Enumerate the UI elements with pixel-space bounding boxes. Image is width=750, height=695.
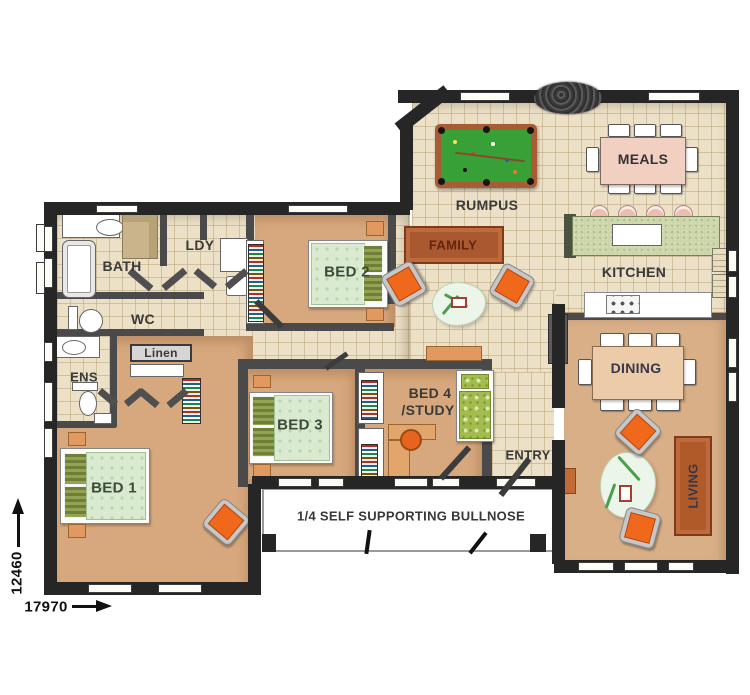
room-label-rumpus: RUMPUS (456, 197, 518, 213)
window (728, 276, 737, 298)
meter-box (36, 262, 45, 294)
island-sink (612, 224, 662, 246)
floor-plan: BATH LDY WC ENS Linen BED 2 BED 1 BED 3 … (0, 0, 750, 695)
rug-decor (617, 456, 641, 482)
meals-chair (685, 147, 698, 172)
wall-segment (200, 212, 207, 240)
room-label-bed4-line1: BED 4 (409, 385, 452, 401)
pool-ball (453, 140, 457, 144)
pool-ball (491, 142, 495, 146)
pool-pocket (483, 179, 490, 186)
dimension-vertical: 12460 (9, 551, 26, 594)
meals-chair (608, 124, 630, 137)
bed4-pillow (461, 374, 489, 389)
bath-sink (96, 219, 124, 236)
robe-shelves (361, 444, 378, 478)
bath-cabinet (122, 213, 158, 259)
window (96, 205, 138, 213)
linen-shelf (130, 364, 184, 377)
robe-shelves (361, 380, 378, 420)
pool-pocket (438, 178, 445, 185)
furniture-label-living: LIVING (686, 463, 701, 508)
bed2-side-table (366, 221, 384, 236)
window (44, 342, 53, 362)
dining-chair (656, 333, 680, 347)
bathtub (62, 240, 96, 298)
porch-post (530, 534, 546, 552)
meter-box (36, 224, 45, 252)
dimension-arrow-up-icon (12, 498, 24, 514)
window (432, 478, 460, 487)
pool-pocket (527, 127, 534, 134)
window (648, 92, 700, 101)
dimension-arrow-right-icon (96, 600, 112, 612)
window (318, 478, 344, 487)
room-label-bath: BATH (102, 258, 141, 274)
dining-chair (578, 359, 592, 385)
window (44, 382, 53, 422)
window (394, 478, 428, 487)
bed4-duvet (459, 391, 491, 439)
wall-segment (552, 440, 565, 564)
wc-toilet (79, 309, 103, 333)
wall-segment (246, 323, 394, 331)
room-label-bed1: BED 1 (91, 480, 137, 497)
cooktop (606, 295, 640, 314)
dining-chair (600, 333, 624, 347)
wall-segment (56, 329, 204, 336)
dining-chair (628, 333, 652, 347)
bed4-sideboard (426, 346, 482, 361)
window (728, 338, 737, 368)
pool-pocket (438, 127, 445, 134)
porch-post (262, 534, 276, 552)
window (88, 584, 132, 593)
pool-pocket (483, 126, 490, 133)
bed2-side-table (366, 308, 384, 321)
wall-segment (552, 304, 565, 408)
note-bullnose: 1/4 SELF SUPPORTING BULLNOSE (297, 509, 525, 524)
pool-ball (513, 170, 517, 174)
window (460, 92, 510, 101)
room-label-bed2: BED 2 (324, 264, 370, 281)
double-door-bed1 (142, 388, 184, 416)
furniture-label-dining: DINING (611, 360, 662, 376)
furniture-label-family: FAMILY (429, 238, 477, 253)
wall-segment (726, 90, 739, 574)
dimension-line (72, 605, 96, 608)
wall-segment (44, 582, 260, 595)
window (278, 478, 312, 487)
room-label-bed3: BED 3 (277, 417, 323, 434)
double-door-ensuite (102, 388, 140, 416)
pool-table (435, 124, 537, 188)
window (288, 205, 348, 213)
window (728, 372, 737, 402)
wall-segment (238, 359, 248, 487)
window (44, 226, 53, 252)
window (578, 562, 614, 571)
coffee-table (451, 297, 467, 308)
floor-entry (492, 372, 554, 490)
window (624, 562, 658, 571)
meals-chair (634, 124, 656, 137)
bed4-desk-chair (400, 429, 422, 451)
bed3-pillow (252, 427, 276, 457)
room-label-ensuite: ENS (70, 370, 98, 385)
window (44, 258, 53, 288)
kitchen-bench (584, 292, 712, 318)
bed3-pillow (252, 396, 276, 426)
wall-segment (160, 212, 167, 266)
dimension-horizontal: 17970 (24, 599, 67, 616)
room-label-laundry: LDY (186, 237, 215, 253)
dining-chair (682, 359, 696, 385)
shrub-plant (534, 82, 602, 114)
entry-console (564, 468, 576, 494)
wall-segment (248, 484, 261, 595)
room-label-entry: ENTRY (505, 448, 550, 463)
pool-ball (463, 168, 467, 172)
room-label-linen: Linen (144, 346, 178, 360)
bed1-pillow (64, 453, 88, 485)
room-label-wc: WC (131, 311, 155, 327)
bed3-side-table (253, 375, 271, 388)
wc-cistern (68, 306, 78, 330)
ensuite-sink (62, 340, 86, 355)
rug-decor (605, 483, 617, 508)
room-label-kitchen: KITCHEN (602, 264, 666, 280)
bed1-side-table (68, 524, 86, 538)
bed1-pillow (64, 486, 88, 518)
meals-chair (586, 147, 599, 172)
coffee-table (619, 485, 632, 502)
double-door-hall (198, 268, 244, 298)
window (668, 562, 694, 571)
robe-shelves (182, 378, 201, 424)
meals-chair (660, 124, 682, 137)
pool-cue (455, 152, 525, 163)
window (158, 584, 202, 593)
dimension-line (17, 513, 20, 547)
pool-pocket (527, 178, 534, 185)
furniture-label-meals: MEALS (618, 151, 669, 167)
window (728, 250, 737, 272)
bed1-side-table (68, 432, 86, 446)
window (44, 428, 53, 458)
wall-segment (400, 124, 413, 210)
room-label-bed4-line2: /STUDY (401, 402, 454, 418)
